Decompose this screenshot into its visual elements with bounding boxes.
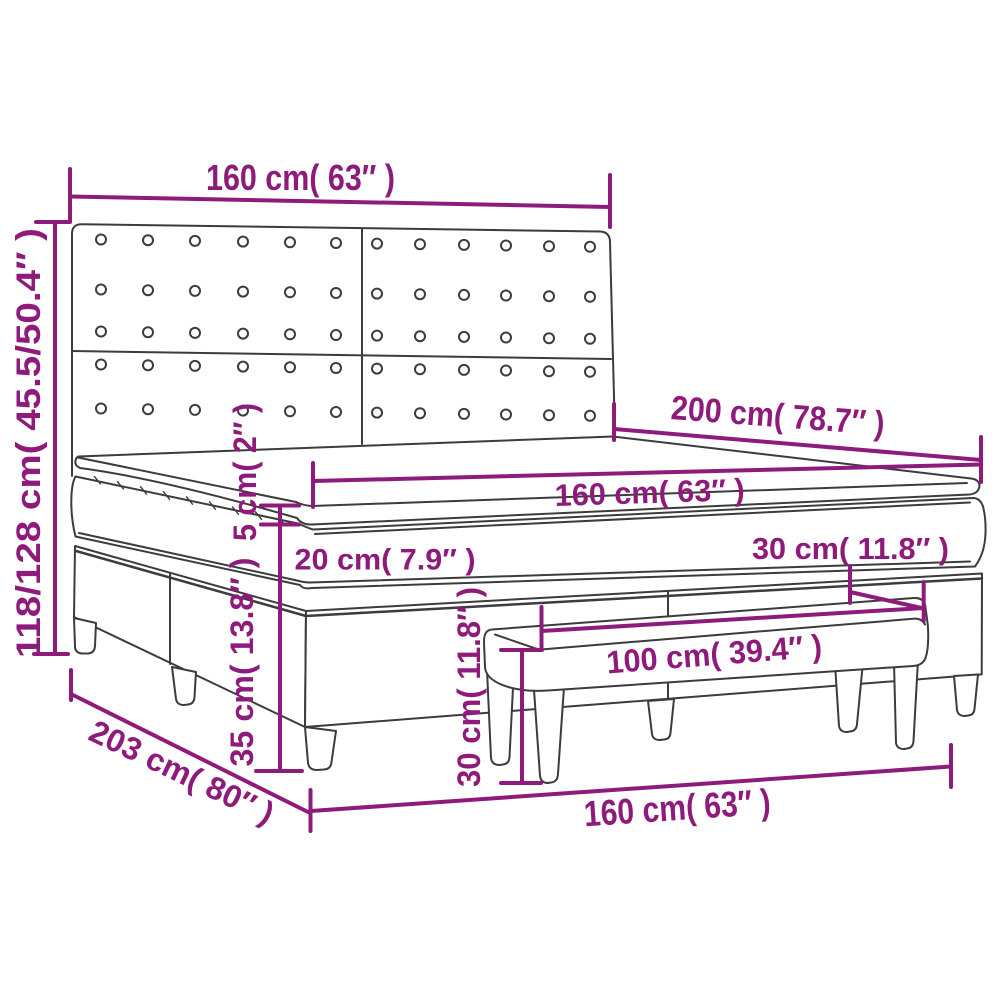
svg-text:30 cm( 11.8″ ): 30 cm( 11.8″ )	[451, 587, 487, 787]
svg-text:160 cm( 63″ ): 160 cm( 63″ )	[206, 157, 395, 198]
svg-text:118/128 cm( 45.5/50.4″ ): 118/128 cm( 45.5/50.4″ )	[10, 228, 48, 658]
svg-text:20 cm( 7.9″ ): 20 cm( 7.9″ )	[295, 544, 476, 577]
svg-text:35 cm( 13.8″ ): 35 cm( 13.8″ )	[224, 558, 260, 767]
svg-text:5 cm( 2″ ): 5 cm( 2″ )	[227, 403, 263, 541]
svg-text:30 cm( 11.8″ ): 30 cm( 11.8″ )	[752, 531, 949, 566]
svg-text:160 cm( 63″ ): 160 cm( 63″ )	[554, 472, 745, 513]
